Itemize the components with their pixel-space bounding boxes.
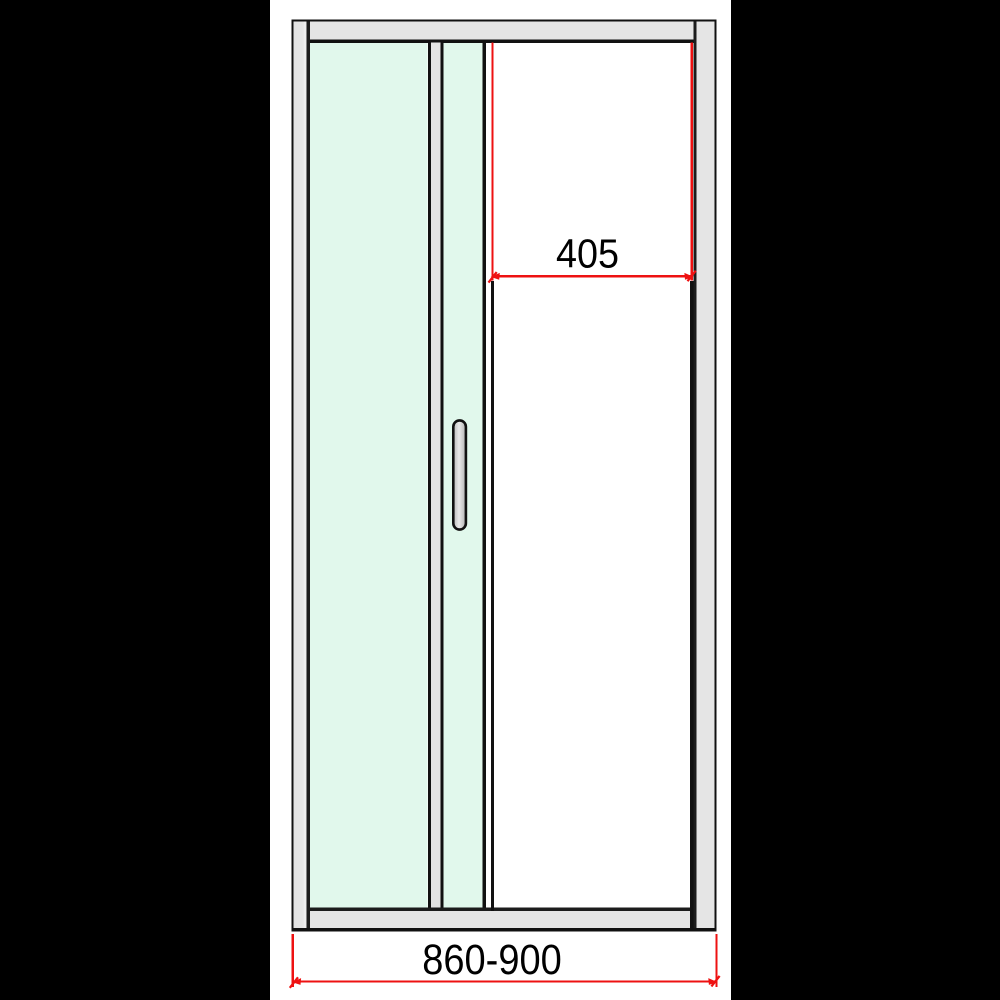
svg-text:860-900: 860-900 [422,937,562,984]
svg-text:405: 405 [556,230,619,276]
